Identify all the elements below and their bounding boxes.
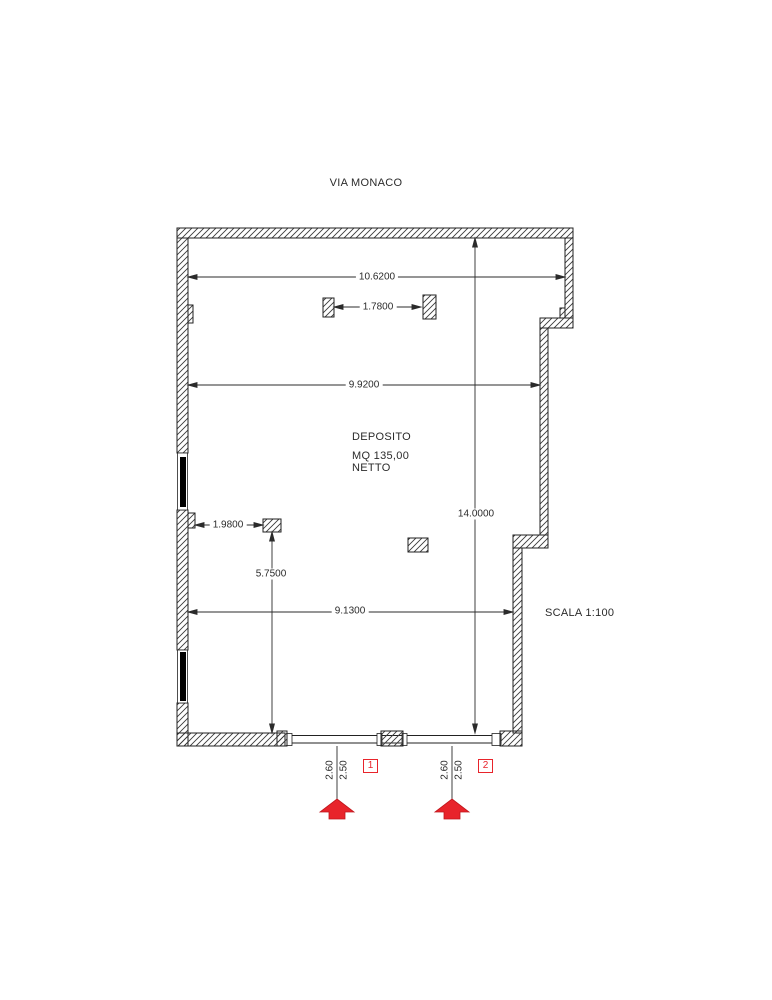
dim-top-width: 10.6200 (356, 272, 398, 283)
pillar-top-right (423, 295, 436, 319)
wall-left-notch-upper (188, 305, 193, 323)
wall-right-lower (513, 548, 522, 733)
dim-total-height: 14.0000 (455, 509, 497, 520)
floor-plan-drawing (0, 0, 772, 1000)
entrance-1-badge: 1 (363, 759, 378, 773)
pillar-top-left (323, 298, 334, 317)
window-upper (180, 457, 186, 507)
wall-right-upper (565, 238, 573, 318)
wall-top (177, 228, 573, 238)
room-net-label: NETTO (352, 462, 391, 474)
entrance-2-width-outer: 2.60 (440, 760, 451, 779)
pillar-middle-center (408, 538, 428, 552)
wall-right-step-2 (513, 535, 548, 548)
wall-left-notch-lower (188, 513, 195, 528)
entrance-1-width-outer: 2.60 (325, 760, 336, 779)
dim-pillar-gap: 1.7800 (360, 302, 397, 313)
wall-left-middle (177, 510, 188, 650)
floor-plan-page: VIA MONACO 10.6200 1.7800 9.9200 14.0000… (0, 0, 772, 1000)
room-area: MQ 135,00 (352, 450, 409, 462)
entrance-1-arrow-icon (320, 799, 354, 819)
wall-corner-bottom-right (500, 731, 522, 746)
wall-bottom-left (177, 733, 285, 746)
pier-bottom-center (381, 731, 403, 746)
pillar-middle-left (263, 519, 281, 532)
entrance-arrows (320, 799, 469, 819)
dim-left-offset: 1.9800 (210, 520, 247, 531)
entrance-1-width-inner: 2.50 (339, 760, 350, 779)
street-name: VIA MONACO (330, 177, 403, 189)
dim-bottom-width: 9.1300 (332, 606, 369, 617)
dim-mid-width: 9.9200 (346, 380, 383, 391)
wall-right-step-notch (560, 308, 565, 318)
wall-right-step-1 (540, 318, 573, 328)
wall-left-upper (177, 238, 188, 453)
room-name: DEPOSITO (352, 431, 411, 443)
dim-lower-height: 5.7500 (253, 569, 290, 580)
entrance-2-arrow-icon (435, 799, 469, 819)
wall-right-middle (540, 328, 548, 535)
entrance-2-badge: 2 (478, 759, 493, 773)
pier-bottom-left (277, 731, 287, 746)
entrance-2-width-inner: 2.50 (454, 760, 465, 779)
scale-label: SCALA 1:100 (545, 607, 614, 619)
window-lower (180, 652, 186, 701)
